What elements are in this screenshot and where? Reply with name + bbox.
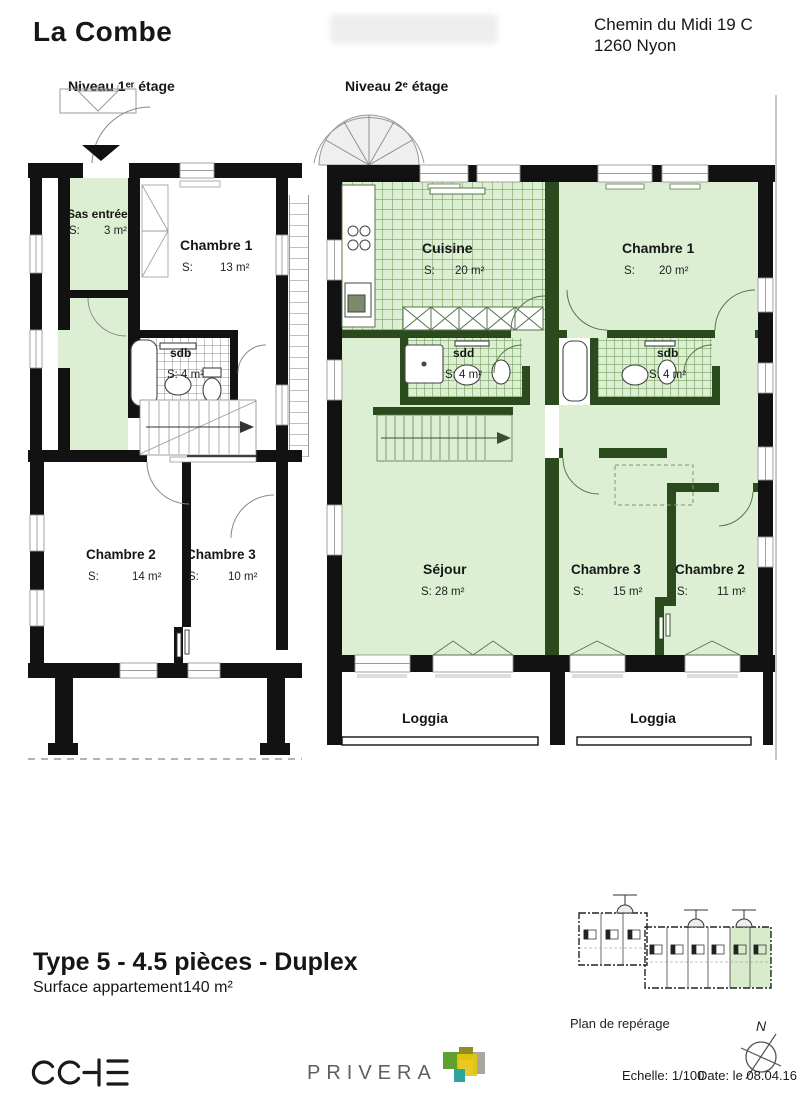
svg-text:S:: S: — [624, 265, 635, 277]
room-label-l2-chambre2: Chambre 2 — [675, 562, 745, 577]
room-label-chambre3: Chambre 3 — [186, 547, 256, 562]
svg-text:S:: S: — [69, 225, 80, 237]
room-label-cuisine: Cuisine — [422, 240, 473, 256]
level2-plan: Cuisine S: 20 m² Chambre 1 S: 20 m² sdd … — [315, 85, 800, 775]
svg-text:S: 4 m²: S: 4 m² — [445, 369, 482, 381]
svg-text:S: 28 m²: S: 28 m² — [421, 586, 465, 598]
svg-text:S:: S: — [182, 262, 193, 274]
apartment-type-title: Type 5 - 4.5 pièces - Duplex — [33, 948, 358, 977]
level1-plan: Sas entrée S: 3 m² Chambre 1 S: 13 m² sd… — [20, 85, 320, 765]
room-label-l2-chambre3: Chambre 3 — [571, 562, 641, 577]
scale-text: Echelle: 1/100 — [622, 1068, 704, 1083]
stair-tower-2 — [684, 910, 708, 927]
room-label-chambre2: Chambre 2 — [86, 547, 156, 562]
address-line2: 1260 Nyon — [594, 35, 753, 56]
room-label-sejour: Séjour — [423, 561, 467, 577]
room-label-sdb1: sdb — [170, 346, 191, 360]
surface-label: Surface appartement — [33, 979, 182, 997]
svg-text:20 m²: 20 m² — [659, 265, 689, 277]
svg-text:S: 4 m²: S: 4 m² — [649, 369, 686, 381]
room-label-loggia-right: Loggia — [630, 710, 676, 726]
faint-stamp — [330, 14, 498, 44]
svg-text:S:: S: — [188, 571, 199, 583]
svg-text:S:: S: — [424, 265, 435, 277]
room-label-sdd: sdd — [453, 346, 474, 360]
room-label-l2-chambre1: Chambre 1 — [622, 240, 695, 256]
cche-logo — [30, 1056, 138, 1090]
key-plan-highlight — [730, 927, 771, 988]
svg-text:20 m²: 20 m² — [455, 265, 485, 277]
svg-text:S:: S: — [573, 586, 584, 598]
privera-logo-text: PRIVERA — [307, 1062, 437, 1085]
room-label-chambre1: Chambre 1 — [180, 237, 253, 253]
kitchen-fittings — [342, 185, 543, 330]
address-block: Chemin du Midi 19 C 1260 Nyon — [594, 14, 753, 56]
room-label-sas: Sas entrée — [67, 207, 128, 221]
svg-text:S:: S: — [88, 571, 99, 583]
surface-value: 140 m² — [183, 979, 233, 997]
level1-stairs — [140, 400, 256, 462]
project-title: La Combe — [33, 16, 172, 48]
floor-plan-sheet: La Combe Chemin du Midi 19 C 1260 Nyon N… — [0, 0, 800, 1103]
svg-text:13 m²: 13 m² — [220, 262, 250, 274]
key-plan-label: Plan de repérage — [570, 1016, 670, 1031]
address-line1: Chemin du Midi 19 C — [594, 14, 753, 35]
stair-tower-1 — [613, 895, 637, 913]
svg-text:S:: S: — [677, 586, 688, 598]
date-text: Date: le 08.04.16 — [698, 1068, 797, 1083]
entry-arrow-icon — [82, 145, 120, 161]
svg-text:10 m²: 10 m² — [228, 571, 258, 583]
svg-text:3 m²: 3 m² — [104, 225, 127, 237]
room-label-loggia-left: Loggia — [402, 710, 448, 726]
level2-stairs — [377, 415, 512, 461]
chambre1-closets — [142, 181, 220, 277]
key-plan — [573, 888, 773, 992]
svg-text:14 m²: 14 m² — [132, 571, 162, 583]
compass-north-label: N — [756, 1018, 767, 1034]
svg-text:11 m²: 11 m² — [717, 586, 746, 598]
spiral-stair — [314, 115, 424, 165]
privera-logo-mark — [443, 1047, 495, 1093]
room-label-sdb2: sdb — [657, 346, 678, 360]
svg-text:15 m²: 15 m² — [613, 586, 643, 598]
svg-text:S: 4 m²: S: 4 m² — [167, 369, 204, 381]
stair-tower-3 — [732, 910, 756, 927]
